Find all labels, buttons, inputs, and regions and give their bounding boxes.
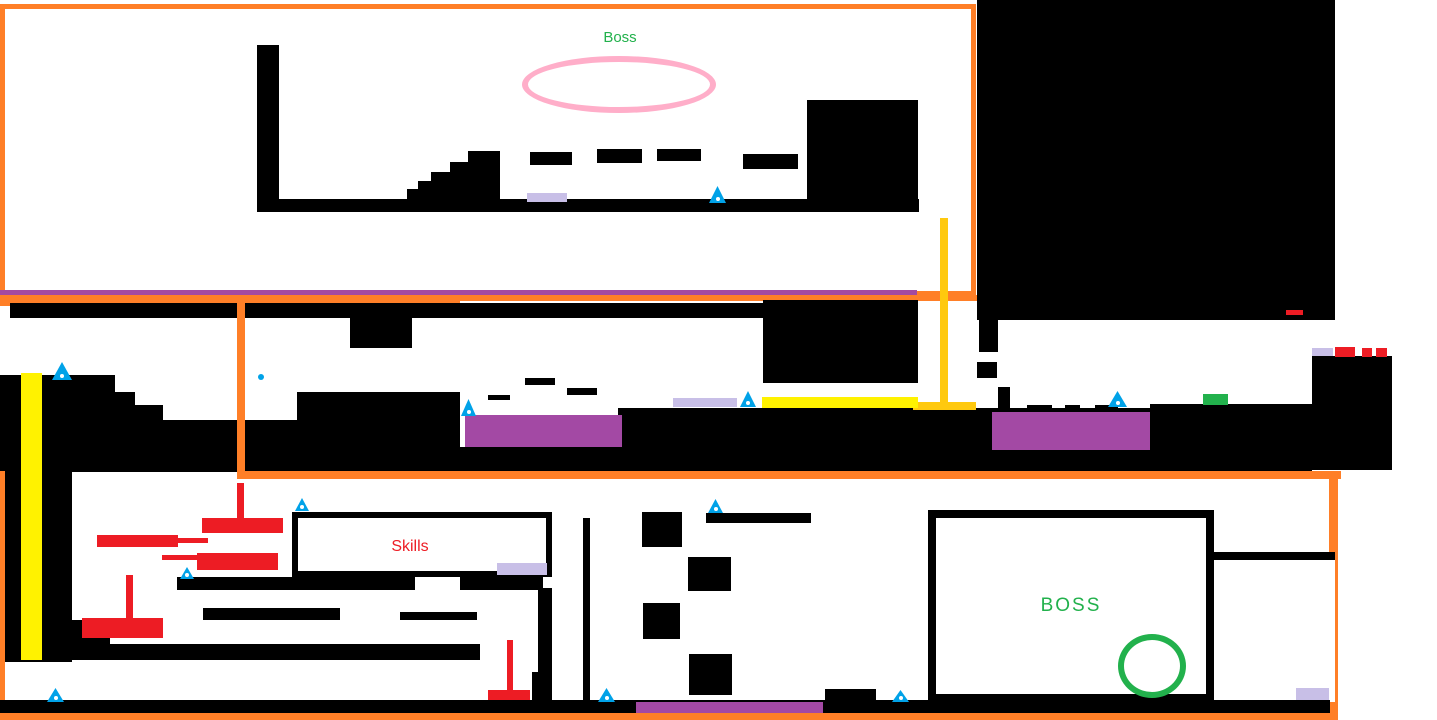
lavender-pad — [497, 563, 547, 575]
red-hazard-dash — [1362, 348, 1372, 357]
ledge-bar — [400, 612, 477, 620]
block-obstacle — [643, 603, 680, 639]
lavender-pad — [673, 398, 737, 407]
boss-spawn-ring-ellipse — [522, 56, 716, 113]
gold-drop-line — [940, 218, 948, 406]
player-marker-icon — [1108, 391, 1127, 407]
paint-canvas: Boss — [0, 0, 1437, 720]
mini-platform — [1027, 405, 1052, 412]
mini-platform — [488, 395, 510, 400]
ceiling-block — [350, 317, 412, 348]
lavender-pad — [527, 193, 567, 202]
red-hazard-post — [507, 640, 513, 692]
purple-floor-strip — [636, 702, 823, 713]
zone2-divider — [237, 300, 245, 479]
red-hazard-dash — [1376, 348, 1387, 357]
red-hazard-bar — [82, 618, 163, 638]
red-dash-on-block — [1286, 310, 1303, 315]
floating-platform — [743, 154, 798, 169]
lavender-pad — [1312, 348, 1333, 356]
zone3-left-edge — [0, 471, 5, 720]
far-right-block — [1312, 356, 1392, 470]
lower-floor-bar — [60, 644, 480, 660]
player-marker-icon — [740, 391, 756, 407]
player-marker-icon — [892, 690, 909, 702]
boss-room-label: BOSS — [928, 596, 1214, 617]
thin-wall — [583, 518, 590, 705]
red-hazard-post — [237, 483, 244, 521]
stair-step — [418, 181, 431, 202]
player-marker-icon — [295, 498, 309, 511]
purple-platform-2 — [992, 412, 1150, 450]
left-terrain-shelf — [297, 392, 460, 472]
wall-column — [538, 588, 552, 705]
stair-step — [431, 172, 450, 202]
floating-platform — [530, 152, 572, 165]
left-terrain-step — [163, 420, 297, 472]
red-hazard-bar — [488, 690, 530, 700]
yellow-ledge — [762, 397, 918, 408]
zone1-boss-label: Boss — [520, 30, 720, 47]
player-marker-icon — [708, 499, 723, 513]
red-hazard-dash — [1335, 347, 1355, 357]
left-terrain-mass — [0, 375, 115, 472]
mini-platform — [567, 388, 597, 395]
player-marker-icon — [180, 567, 194, 579]
mid-tall-block — [763, 300, 918, 383]
boss-spawn-ring-circle — [1118, 634, 1186, 698]
ledge-bar — [203, 608, 340, 620]
red-hazard-spike — [178, 538, 208, 543]
red-hazard-bar — [197, 553, 278, 570]
mini-platform — [525, 378, 555, 385]
ledge-bar — [460, 577, 543, 590]
red-hazard-bar — [97, 535, 178, 547]
zone3-bottom-edge — [0, 713, 1338, 720]
skills-room-label: Skills — [280, 538, 540, 556]
floating-platform — [597, 149, 642, 163]
player-marker-icon — [52, 362, 72, 380]
player-marker-icon — [598, 688, 615, 702]
zone3-top-edge — [237, 471, 1341, 479]
left-terrain-step — [135, 405, 163, 472]
ground-under-purple1 — [460, 447, 622, 471]
gold-ledge — [913, 402, 976, 410]
left-terrain-step — [115, 392, 135, 472]
green-pad — [1203, 394, 1228, 405]
ledge-bar — [177, 577, 415, 590]
top-right-block-dash — [977, 362, 997, 378]
red-hazard-bar — [202, 518, 283, 533]
purple-platform-1 — [465, 415, 622, 447]
stair-step — [407, 189, 418, 202]
player-marker-icon — [47, 688, 64, 702]
small-post — [998, 387, 1010, 412]
floating-platform — [657, 149, 701, 161]
top-right-block-foot — [979, 318, 998, 352]
yellow-shaft — [21, 373, 42, 660]
block-obstacle — [689, 654, 732, 695]
block-obstacle — [688, 557, 731, 591]
ledge-bar — [706, 513, 811, 523]
top-right-solid-block — [977, 0, 1335, 320]
lavender-pad — [1296, 688, 1329, 700]
stair-step — [468, 151, 500, 202]
red-hazard-spike — [162, 555, 198, 560]
boss-antechamber-box — [1207, 552, 1335, 702]
zone1-right-block — [807, 100, 918, 202]
block-obstacle — [642, 512, 682, 547]
player-marker-icon — [461, 399, 476, 416]
mini-platform — [1065, 405, 1080, 412]
red-hazard-post — [126, 575, 133, 620]
zone1-left-wall — [257, 45, 279, 212]
blue-dot-marker — [258, 374, 264, 380]
stair-step — [450, 162, 468, 202]
mid-ground-band-right — [1150, 404, 1312, 471]
